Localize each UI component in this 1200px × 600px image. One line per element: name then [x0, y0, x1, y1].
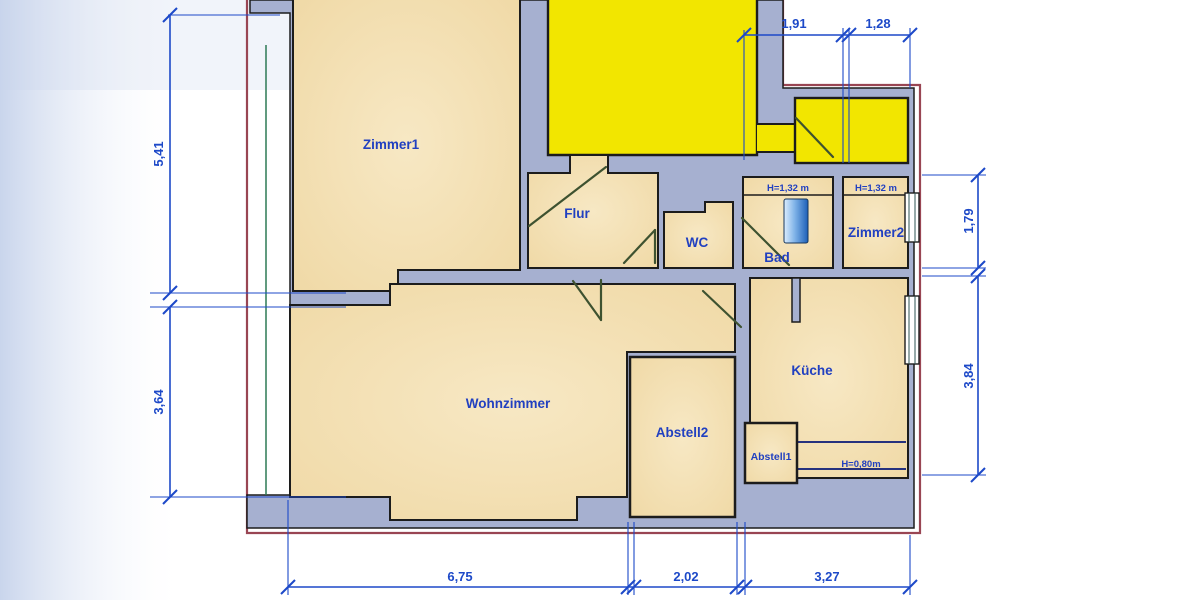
kueche-wall-stub	[792, 278, 800, 322]
dim-right-top-value: 1,79	[961, 208, 976, 233]
bathtub-icon	[784, 199, 808, 243]
room-label-zimmer2: Zimmer2	[848, 225, 904, 240]
window-zimmer2	[905, 193, 919, 242]
room-highlighted-top	[548, 0, 757, 155]
zimmer2-height-note: H=1,32 m	[855, 183, 897, 194]
dim-bottom-middle-value: 2,02	[673, 569, 698, 584]
window-opening	[905, 193, 919, 242]
window-opening	[905, 296, 919, 364]
bad-height-note: H=1,32 m	[767, 183, 809, 194]
room-label-abstell2: Abstell2	[656, 425, 709, 440]
room-label-wohnzimmer: Wohnzimmer	[466, 396, 551, 411]
room-label-flur: Flur	[564, 206, 590, 221]
room-label-bad: Bad	[764, 250, 790, 265]
room-highlighted-right	[795, 98, 908, 163]
dim-left-top-value: 5,41	[151, 141, 166, 166]
dim-left-bottom-value: 3,64	[151, 389, 166, 415]
floor-plan-page: 5,41 3,64 1,91 1,28 1,79 3,84	[0, 0, 1200, 600]
floor-plan-drawing: 5,41 3,64 1,91 1,28 1,79 3,84	[0, 0, 1200, 600]
dim-bottom-left-value: 6,75	[447, 569, 472, 584]
dim-bottom-right-value: 3,27	[814, 569, 839, 584]
room-label-kueche: Küche	[791, 363, 833, 378]
window-kueche	[905, 296, 919, 364]
dim-top-left-value: 1,91	[781, 16, 806, 31]
room-label-zimmer1: Zimmer1	[363, 137, 420, 152]
dim-right-bottom-value: 3,84	[961, 363, 976, 389]
kueche-counter-height-note: H=0,80m	[841, 459, 880, 470]
dim-top-right-value: 1,28	[865, 16, 890, 31]
room-label-wc: WC	[686, 235, 709, 250]
room-label-abstell1: Abstell1	[751, 451, 792, 463]
highlighted-passage	[757, 124, 795, 152]
